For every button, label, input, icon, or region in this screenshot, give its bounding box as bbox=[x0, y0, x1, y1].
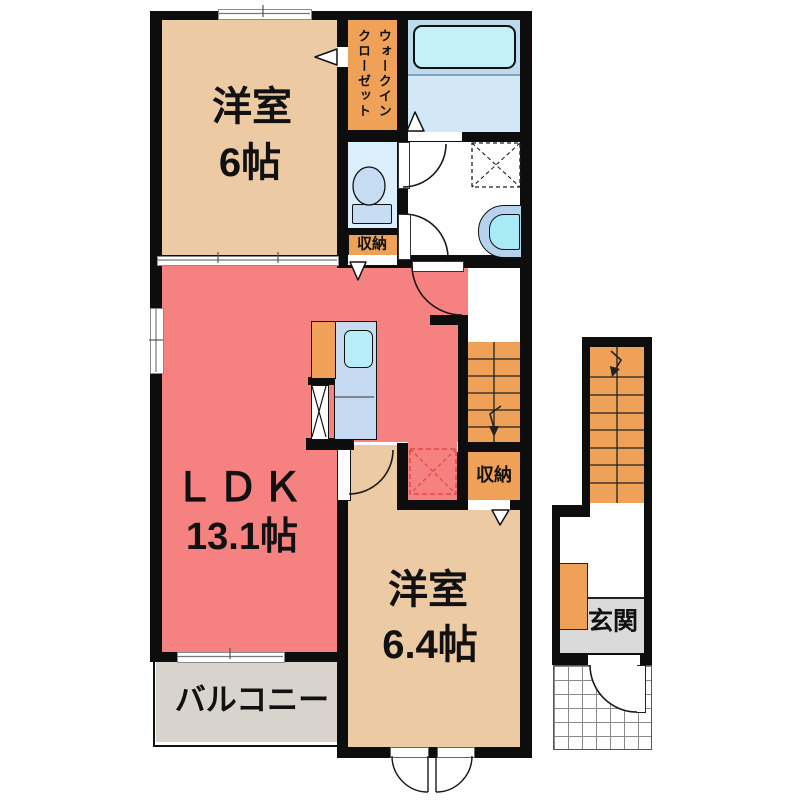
toilet-door-leaf bbox=[398, 142, 410, 189]
wall-stair-bottom bbox=[458, 442, 520, 452]
bedroom2-size: 6.4帖 bbox=[382, 625, 478, 665]
sliding-door-bedroom1-ldk bbox=[157, 256, 339, 266]
entrance-door-gap bbox=[588, 655, 640, 665]
wall-entrance-left-low bbox=[552, 505, 560, 665]
toilet-tank bbox=[352, 204, 392, 224]
storage-top-gap bbox=[348, 255, 397, 265]
bedroom2-label: 洋室 bbox=[388, 570, 468, 610]
entrance-label: 玄関 bbox=[588, 610, 638, 635]
wall-outer-right bbox=[520, 11, 532, 758]
stairs-floor-main bbox=[468, 342, 520, 442]
bedroom2-door-leaf bbox=[337, 449, 351, 501]
bedroom1-label: 洋室 bbox=[212, 87, 292, 127]
wall-stair-left bbox=[458, 315, 468, 452]
walk-in-closet-line1: ウォークイン bbox=[373, 29, 394, 119]
bathroom-lower-floor bbox=[408, 75, 520, 132]
front-door-leaf bbox=[636, 665, 646, 713]
sliding-door-balcony bbox=[177, 652, 285, 663]
balcony-rail-bottom bbox=[153, 745, 339, 747]
bedroom2-window-arc-right bbox=[436, 756, 472, 792]
storage-top-label: 収納 bbox=[357, 237, 387, 252]
walk-in-closet-label: ウォークイン クローゼット bbox=[352, 29, 394, 119]
ldk-label: ＬＤＫ bbox=[174, 468, 306, 508]
kitchen-sink bbox=[344, 330, 373, 368]
washing-machine-x2 bbox=[472, 143, 520, 187]
bath-door-gap bbox=[408, 132, 462, 141]
kitchen-cabinet bbox=[311, 321, 336, 379]
wall-entrance-left-up bbox=[582, 337, 590, 505]
shoe-cabinet bbox=[559, 563, 588, 630]
ldk-size: 13.1帖 bbox=[186, 518, 298, 556]
wash-basin-bowl bbox=[489, 214, 520, 250]
ldk-floor-pocket bbox=[408, 442, 457, 500]
bedroom2-window-leaf-right bbox=[437, 747, 475, 758]
washing-machine-space bbox=[472, 143, 520, 187]
balcony-rail-left bbox=[153, 662, 155, 747]
bedroom1-floor bbox=[162, 19, 337, 256]
bedroom2-window-arc-left bbox=[392, 756, 428, 792]
closet-door-gap bbox=[337, 47, 348, 67]
bedroom2-window-leaf-left bbox=[390, 747, 429, 758]
floor-plan: 洋室 6帖 ＬＤＫ 13.1帖 洋室 6.4帖 バルコニー 玄関 収納 収納 ウ… bbox=[0, 0, 800, 800]
ldk-hall-door-leaf bbox=[412, 261, 464, 272]
washing-machine-x1 bbox=[472, 143, 520, 187]
window-ldk-left bbox=[150, 308, 164, 374]
storage-bottom-gap bbox=[468, 500, 510, 510]
window-bedroom1-top bbox=[218, 9, 312, 20]
wall-entrance-top bbox=[582, 337, 652, 347]
stairs-floor-entrance bbox=[590, 347, 644, 503]
wall-outer-bottom bbox=[337, 747, 532, 758]
wall-entrance-right bbox=[644, 337, 652, 665]
bedroom1-size: 6帖 bbox=[219, 143, 281, 183]
refrigerator-space bbox=[311, 385, 329, 440]
wall-closet-bottom bbox=[337, 130, 408, 142]
walk-in-closet-line2: クローゼット bbox=[352, 29, 373, 119]
wall-hall-stub bbox=[430, 315, 458, 325]
balcony-label: バルコニー bbox=[175, 685, 329, 716]
storage-bottom-label: 収納 bbox=[476, 466, 512, 484]
washroom-door-leaf bbox=[398, 214, 411, 260]
bathtub bbox=[413, 25, 516, 69]
